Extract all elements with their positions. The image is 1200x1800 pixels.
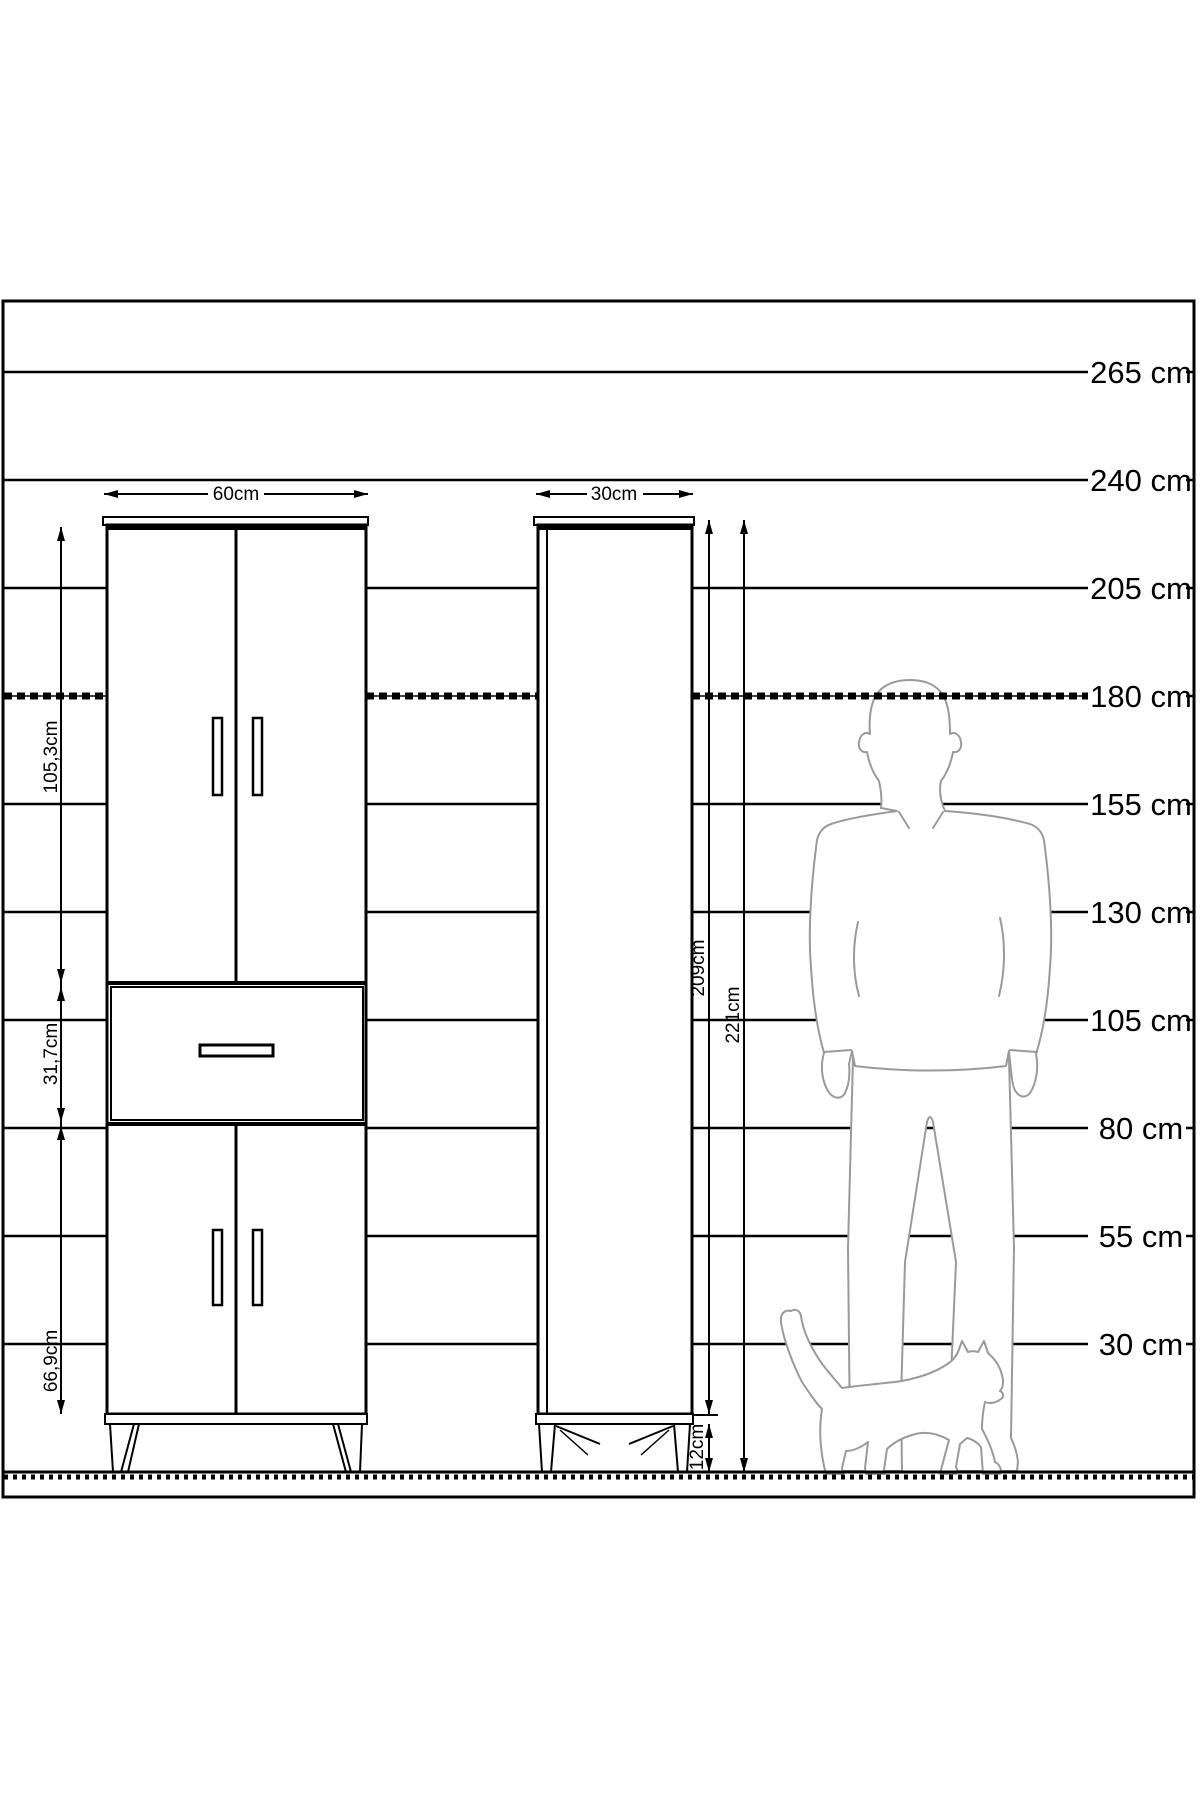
- tall-cabinet: [534, 517, 694, 1472]
- door-handle: [213, 718, 222, 795]
- ruler-label-130: 130 cm: [1090, 895, 1192, 930]
- cabinet-leg: [110, 1424, 139, 1472]
- cabinet-leg: [539, 1424, 555, 1472]
- furniture-dimension-diagram: 265 cm 240 cm 205 cm 180 cm 155 cm 130 c…: [0, 0, 1200, 1800]
- dim-width-tall: 30cm: [536, 483, 693, 505]
- ruler-label-265: 265 cm: [1090, 355, 1192, 390]
- ruler-label-105: 105 cm: [1090, 1003, 1192, 1038]
- dim-label-upper-section: 105,3cm: [41, 721, 62, 794]
- dim-width-double: 60cm: [104, 483, 368, 505]
- dim-sections-double: 105,3cm 31,7cm 66,9cm: [41, 527, 65, 1414]
- cabinet-leg: [333, 1424, 362, 1472]
- ruler-label-30: 30 cm: [1099, 1327, 1183, 1362]
- man-silhouette: [810, 680, 1051, 1098]
- ruler-label-180: 180 cm: [1090, 679, 1192, 714]
- tall-cabinet-plinth: [536, 1414, 693, 1424]
- dim-label-30cm: 30cm: [591, 484, 637, 505]
- dim-label-body-height: 209cm: [688, 939, 709, 996]
- diagram-canvas: 265 cm 240 cm 205 cm 180 cm 155 cm 130 c…: [0, 0, 1200, 1800]
- dim-heights-tall: 209cm 221cm 12cm: [687, 520, 748, 1472]
- drawer-handle: [200, 1045, 273, 1056]
- dim-label-total-height: 221cm: [723, 986, 744, 1043]
- ruler-label-80: 80 cm: [1099, 1111, 1183, 1146]
- double-cabinet-plinth: [105, 1414, 367, 1424]
- scale-figures: [781, 680, 1051, 1474]
- dim-label-drawer-section: 31,7cm: [41, 1023, 62, 1085]
- door-handle: [213, 1230, 222, 1305]
- ruler-label-240: 240 cm: [1090, 463, 1192, 498]
- dim-label-leg-height: 12cm: [687, 1424, 708, 1470]
- ground-line: [4, 1472, 1194, 1477]
- dim-label-lower-section: 66,9cm: [41, 1330, 62, 1392]
- leg-brace: [629, 1426, 673, 1444]
- double-cabinet: [103, 517, 368, 1472]
- dim-label-60cm: 60cm: [213, 484, 259, 505]
- door-handle: [253, 1230, 262, 1305]
- leg-brace: [556, 1426, 600, 1444]
- ruler-label-55: 55 cm: [1099, 1219, 1183, 1254]
- ruler-label-155: 155 cm: [1090, 787, 1192, 822]
- tall-cabinet-body: [538, 525, 692, 1414]
- door-handle: [253, 718, 262, 795]
- ruler-label-205: 205 cm: [1090, 571, 1192, 606]
